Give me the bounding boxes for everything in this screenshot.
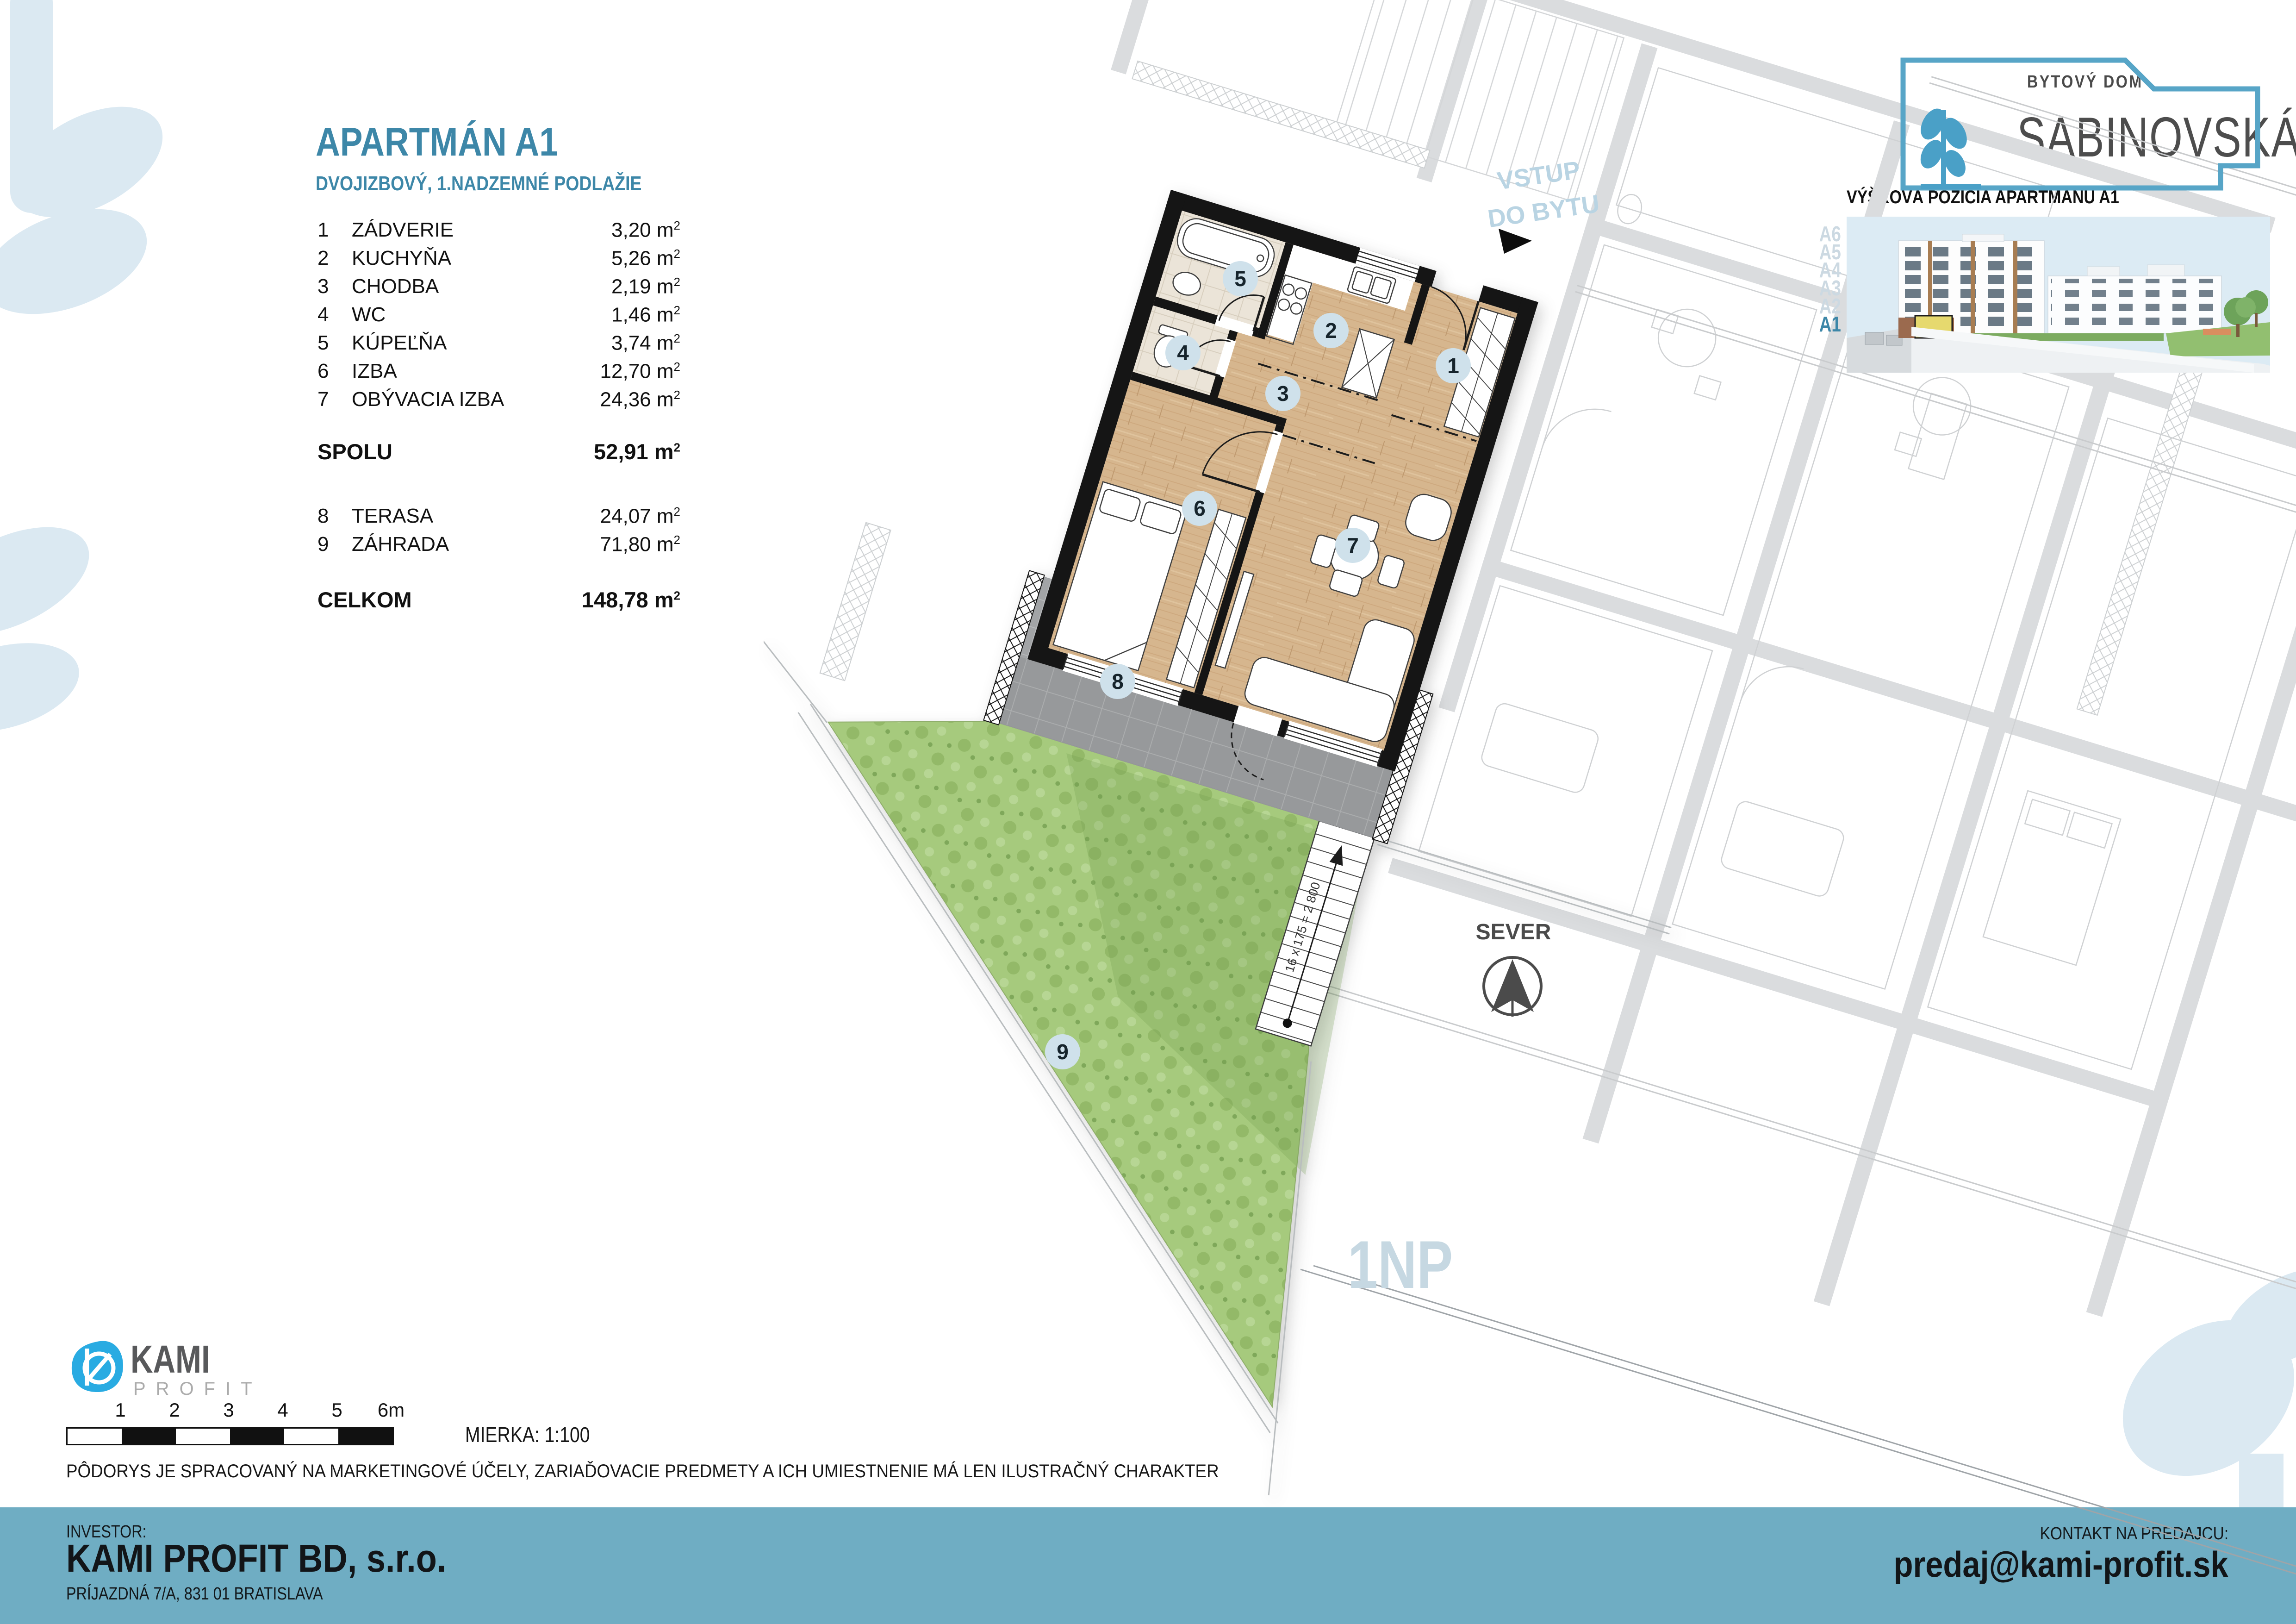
room-badge-8: 8 <box>1100 664 1135 699</box>
room-badge-1: 1 <box>1436 348 1471 383</box>
room-badge-7: 7 <box>1335 528 1370 563</box>
room-badge-5: 5 <box>1223 261 1258 296</box>
floor-label-a1: A1 <box>1805 312 1841 337</box>
plan-overlays <box>0 0 2296 1624</box>
room-badge-6: 6 <box>1182 491 1217 526</box>
room-badge-4: 4 <box>1165 335 1201 370</box>
site-boundary-lines <box>1300 1266 2296 1587</box>
room-badge-2: 2 <box>1313 313 1349 348</box>
north-compass-icon <box>1484 957 1541 1017</box>
north-label: SEVER <box>1453 919 1574 945</box>
floor-number-label: 1NP <box>1348 1226 1479 1304</box>
room-badge-3: 3 <box>1265 376 1300 411</box>
room-badge-9: 9 <box>1045 1034 1080 1069</box>
